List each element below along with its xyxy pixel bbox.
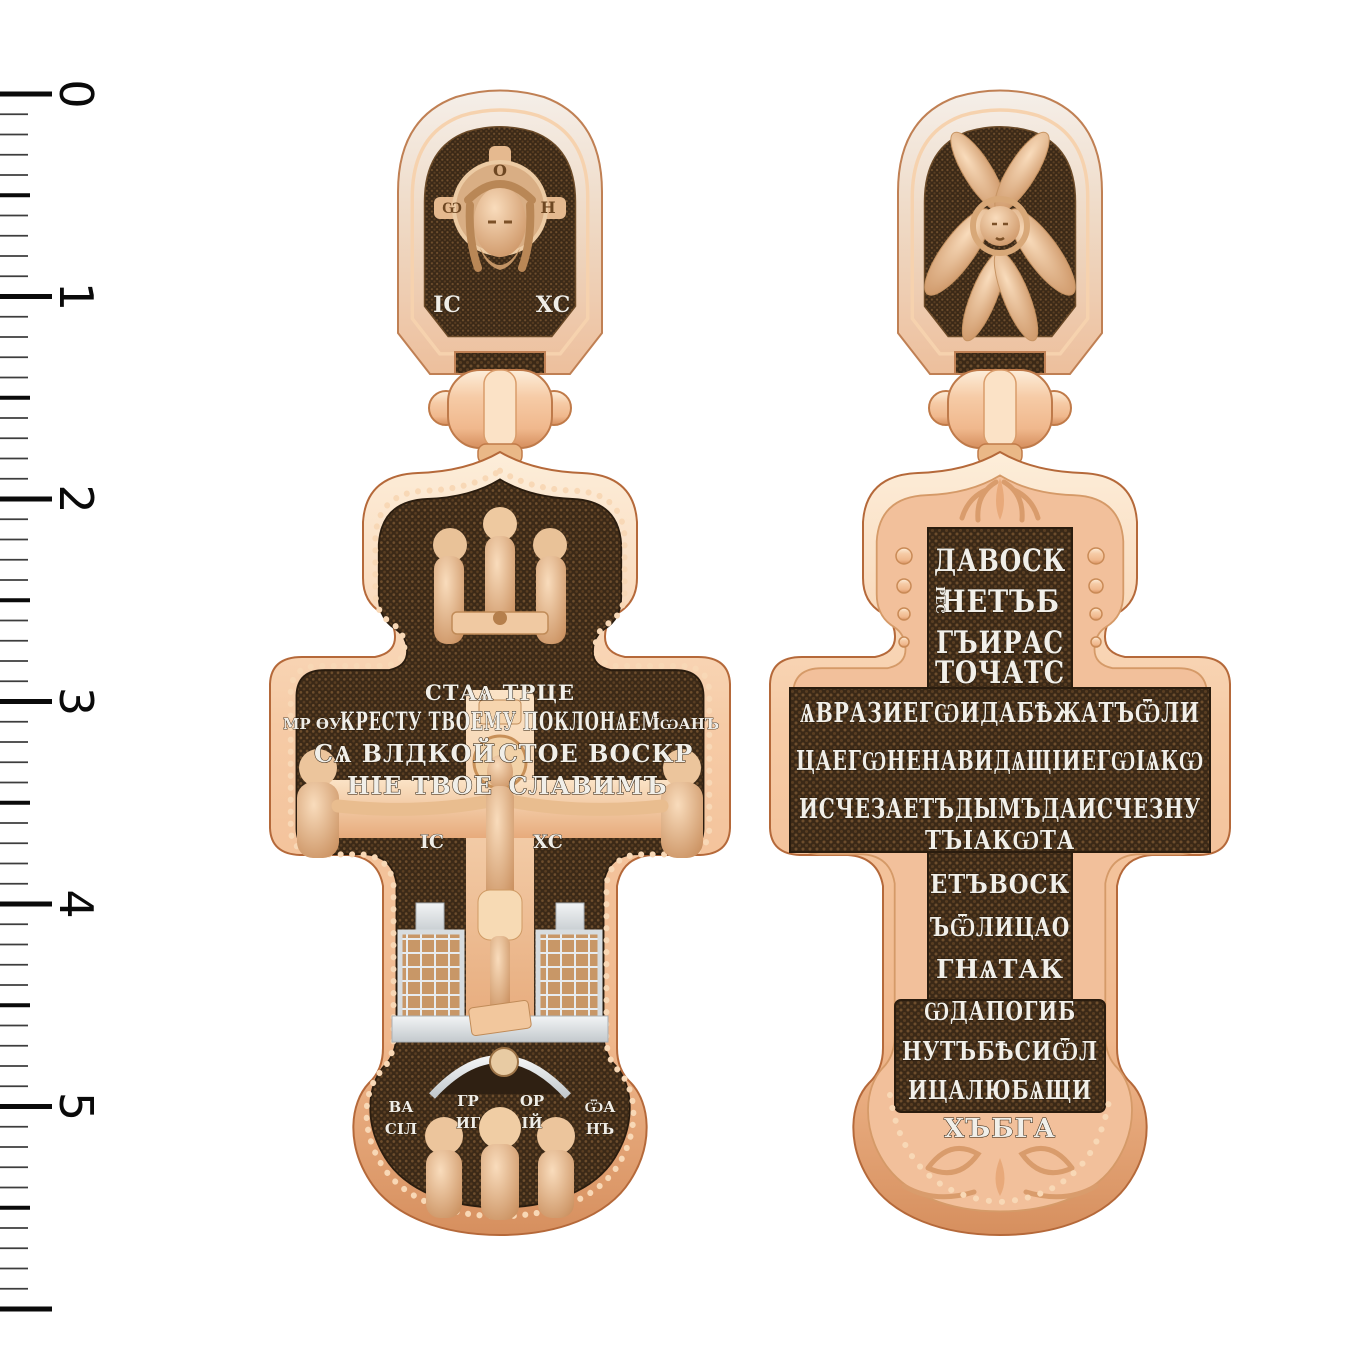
- holy-face: [474, 187, 526, 257]
- back-lower-line-5: ѠДАПОГИБ: [924, 997, 1076, 1027]
- back-lower-line-1: ТЪІАКѠТА: [925, 826, 1075, 856]
- ruler-label: 0: [49, 79, 103, 108]
- bead: [1090, 608, 1102, 620]
- halo: [483, 507, 517, 541]
- inscription-line-3-left: НІЕ ТВОЕ: [347, 771, 493, 800]
- inscription-line-3-right: СЛАВИМЪ: [508, 771, 667, 800]
- bead: [1091, 637, 1101, 647]
- caption-trinity: СТАѦ ТРЦЕ: [425, 680, 575, 705]
- saint-name-frag: СІЛ: [385, 1120, 417, 1138]
- inscription-line-2-right: СТОЕ ВОСКР: [499, 739, 694, 768]
- back-bail: [898, 91, 1102, 465]
- abbr-john: ІѠАНЪ: [653, 715, 720, 733]
- three-saints-row: [425, 1107, 575, 1220]
- bail-monogram-xc: ХС: [536, 292, 571, 318]
- chalice: [493, 611, 507, 625]
- back-lower-line-7: ИЦАЛЮБѦЩИ: [908, 1076, 1092, 1106]
- abbr-theotokos: МР ѲУ: [283, 715, 341, 733]
- saint-name-frag: ИГ: [456, 1114, 481, 1132]
- ruler-label: 5: [49, 1092, 103, 1121]
- back-line-top-2: НЕТЪБ: [940, 584, 1060, 620]
- product-photo: 012345 О Ѡ Н ІС ХС: [0, 0, 1360, 1360]
- inscription-line-2-left: СѦ ВЛДКОЙ: [314, 737, 496, 768]
- inscription-line-1: КРЕСТУ ТВОЕМУ ПОКЛОНѦЕМ: [340, 707, 660, 736]
- adam-skull-icon: [490, 1048, 518, 1076]
- torso: [486, 786, 514, 902]
- ruler-label: 3: [49, 687, 103, 716]
- halo-letter-right: Н: [540, 198, 555, 217]
- ruler-label: 1: [49, 282, 103, 311]
- halo: [537, 1117, 575, 1155]
- bead: [1089, 579, 1103, 593]
- halo: [479, 1107, 521, 1149]
- bead: [896, 548, 912, 564]
- saint-name-frag: ІЙ: [521, 1113, 542, 1132]
- legs: [490, 936, 510, 1012]
- saint-name-frag: ГР: [457, 1092, 479, 1110]
- bead: [899, 637, 909, 647]
- ruler-label: 2: [49, 484, 103, 513]
- back-lower-line-6: НУТЪБѢСИѾЛ: [902, 1037, 1098, 1067]
- bead: [1088, 548, 1104, 564]
- christ-monogram-xc: ХС: [533, 831, 563, 853]
- hinge-pin: [984, 370, 1016, 448]
- saint-figure: [426, 1150, 462, 1218]
- saint-name-frag: НЪ: [586, 1120, 615, 1138]
- back-lower-line-2: ЕТЪВОСК: [930, 870, 1070, 900]
- saint-name-frag: ѾА: [585, 1098, 617, 1116]
- back-lower-line-3: ЪѾЛИЦАО: [930, 913, 1070, 943]
- halo-letter-left: Ѡ: [442, 198, 462, 217]
- front-cross: О Ѡ Н ІС ХС: [270, 91, 730, 1236]
- back-side-small-letters: РЕС: [933, 586, 947, 614]
- back-beam-line-1: ѦВРАЗИЕГѠИДАБѢЖАТЪѾЛИ: [800, 698, 1200, 729]
- halo-letter-top: О: [493, 161, 507, 180]
- front-bail: О Ѡ Н ІС ХС: [398, 91, 602, 465]
- back-lower-line-4: ГНѦТАК: [936, 955, 1064, 985]
- saint-figure: [481, 1144, 519, 1220]
- bail-monogram-ic: ІС: [433, 292, 461, 318]
- ruler-label: 4: [49, 889, 103, 918]
- back-line-top-1: ДАВОСК: [934, 543, 1066, 579]
- back-lower-line-8: ХЪБГА: [944, 1114, 1056, 1144]
- back-cross: ДАВОСК НЕТЪБ ГЪИРАС ТОЧАТС РЕС ѦВРАЗИЕГѠ…: [770, 91, 1230, 1236]
- saint-figure: [538, 1150, 574, 1218]
- back-line-top-4: ТОЧАТС: [935, 655, 1065, 691]
- christ-monogram-ic: ІС: [420, 831, 444, 853]
- bead: [898, 608, 910, 620]
- bead: [897, 579, 911, 593]
- ruler: 012345: [0, 79, 103, 1309]
- back-beam-line-3: ИСЧЕЗАЕТЪДЫМЪДАИСЧЕЗНУ: [799, 794, 1201, 825]
- loincloth: [478, 890, 522, 940]
- hinge-pin: [484, 370, 516, 448]
- saint-name-frag: ВА: [389, 1098, 415, 1116]
- back-beam-line-2: ЦАЕГѠНЕНАВИДѦЩІИЕГѠІѦКѠ: [796, 746, 1204, 777]
- saint-name-frag: ОР: [520, 1092, 544, 1110]
- figure-body: [297, 782, 339, 858]
